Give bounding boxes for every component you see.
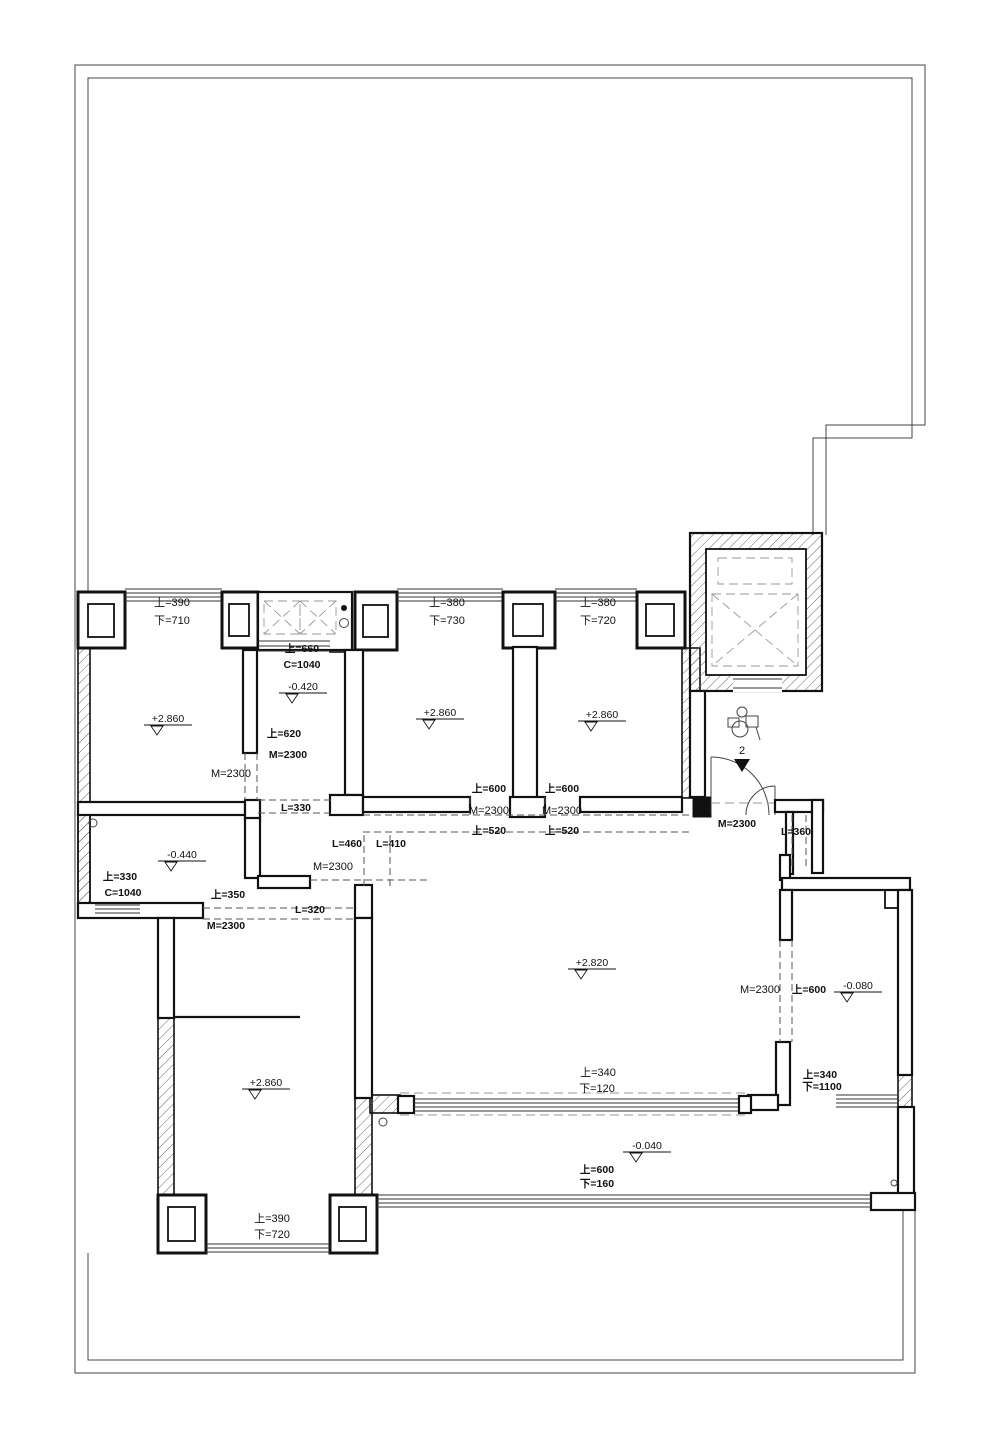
level-marker: -0.420 [279, 681, 327, 703]
dimension-labels: 上=390下=710上=380下=730上=380下=720上=660C=104… [103, 596, 842, 1241]
level-marker: +2.860 [242, 1077, 290, 1099]
column [637, 592, 685, 648]
floor-plan-page: 上=390下=710上=380下=730上=380下=720上=660C=104… [0, 0, 1000, 1440]
svg-text:+2.860: +2.860 [250, 1077, 283, 1089]
level-marker: -0.440 [158, 849, 206, 871]
dimension-label: 上=390 [154, 596, 190, 609]
dimension-label: 上=340 [580, 1066, 616, 1079]
dimension-label: 上=600 [792, 983, 826, 996]
upper-rooms-walls [78, 647, 711, 820]
dimension-label: M=2300 [542, 805, 582, 817]
dimension-label: 上=380 [429, 596, 465, 609]
dimension-label: 上=350 [211, 888, 245, 901]
elevator-shaft [690, 533, 822, 692]
dimension-label: 上=600 [580, 1163, 614, 1176]
column [222, 592, 258, 648]
column [330, 1195, 377, 1253]
column [158, 1195, 206, 1253]
dimension-label: 上=520 [472, 824, 506, 837]
dimension-label: L=320 [295, 904, 325, 916]
dashed-openings [203, 753, 806, 1042]
dimension-label: M=2300 [269, 749, 307, 761]
dimension-label: L=460 [332, 838, 362, 850]
svg-text:-0.420: -0.420 [288, 681, 318, 693]
column [503, 592, 555, 648]
dimension-label: 上=620 [267, 727, 301, 740]
column [355, 592, 397, 650]
dimension-label: M=2300 [740, 984, 780, 996]
svg-text:+2.860: +2.860 [586, 709, 619, 721]
svg-text:-0.080: -0.080 [843, 980, 873, 992]
terrace [89, 819, 898, 1207]
drain-circle [891, 1180, 897, 1186]
dimension-label: C=1040 [283, 659, 320, 671]
level-marker: +2.860 [578, 709, 626, 731]
dimension-label: 上=660 [285, 642, 319, 655]
drain-circle [379, 1118, 387, 1126]
dimension-label: L=410 [376, 838, 406, 850]
dimension-label: L=360 [781, 826, 811, 838]
floor-plan-drawing: 上=390下=710上=380下=730上=380下=720上=660C=104… [0, 0, 1000, 1440]
svg-text:+2.820: +2.820 [576, 957, 609, 969]
dimension-label: 上=330 [103, 870, 137, 883]
dimension-label: 下=160 [580, 1178, 614, 1190]
right-rooms-walls [748, 800, 915, 1210]
dimension-label: M=2300 [718, 818, 756, 830]
level-marker: +2.860 [144, 713, 192, 735]
dimension-label: 下=730 [429, 615, 465, 627]
dimension-label: M=2300 [211, 768, 251, 780]
dimension-label: 下=120 [579, 1083, 615, 1095]
level-marker: -0.080 [834, 980, 882, 1002]
level-marker: -0.040 [623, 1140, 671, 1162]
dimension-label: M=2300 [313, 861, 353, 873]
dimension-label: 2 [739, 745, 745, 757]
dimension-label: L=330 [281, 802, 311, 814]
dimension-label: C=1040 [104, 887, 141, 899]
dimension-label: 上=390 [254, 1212, 290, 1225]
svg-text:+2.860: +2.860 [424, 707, 457, 719]
terrace-rail-bottom [377, 1195, 871, 1207]
dimension-label: 上=600 [545, 782, 579, 795]
svg-text:+2.860: +2.860 [152, 713, 185, 725]
level-marker: +2.820 [568, 957, 616, 979]
dimension-label: 上=340 [803, 1068, 837, 1081]
svg-text:-0.440: -0.440 [167, 849, 197, 861]
dimension-label: 上=380 [580, 596, 616, 609]
dimension-label: 上=600 [472, 782, 506, 795]
column [78, 592, 125, 648]
dimension-label: 上=520 [545, 824, 579, 837]
level-marker: +2.860 [416, 707, 464, 729]
plot-boundary [75, 65, 925, 1373]
dimension-label: M=2300 [207, 920, 245, 932]
sliding-window-top [414, 1099, 739, 1111]
dimension-label: M=2300 [469, 805, 509, 817]
person-symbol [728, 707, 760, 740]
entry-jamb [693, 797, 711, 817]
dimension-label: 下=710 [154, 615, 190, 627]
window-right-room-bottom [836, 1095, 898, 1107]
vent-dot [342, 606, 347, 611]
window-bottom-left [206, 1244, 330, 1252]
dimension-label: 下=720 [580, 615, 616, 627]
dimension-label: 下=1100 [802, 1081, 842, 1093]
svg-text:-0.040: -0.040 [632, 1140, 662, 1152]
dimension-label: 下=720 [254, 1229, 290, 1241]
